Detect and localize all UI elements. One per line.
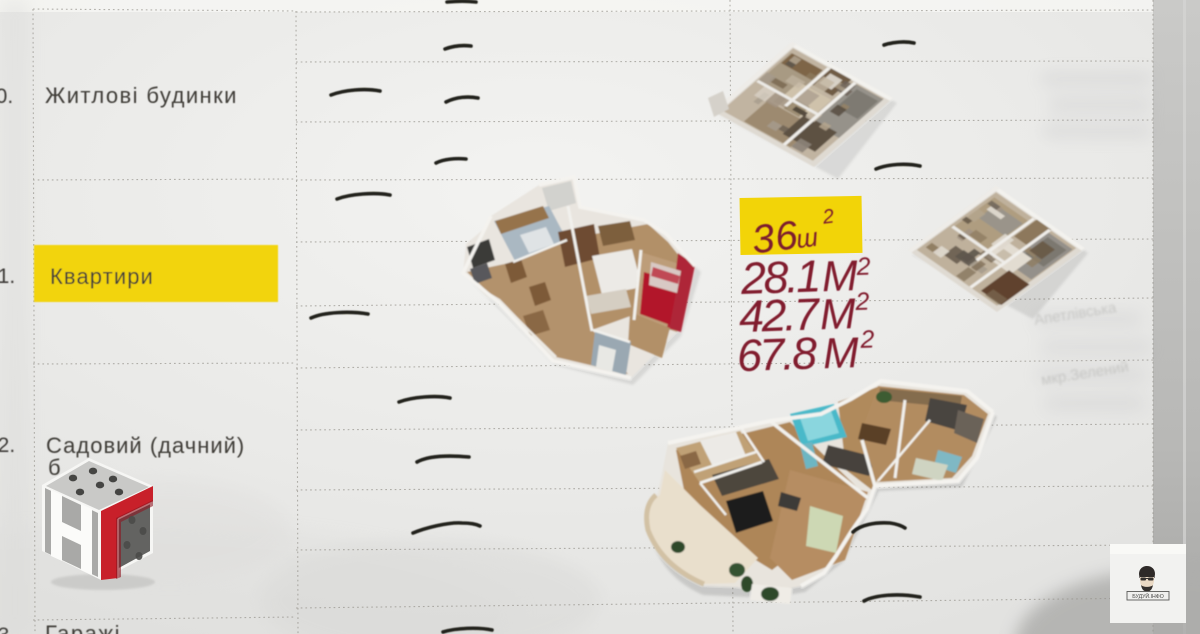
- svg-text:50.: 50.: [0, 85, 13, 108]
- svg-text:Квартири: Квартири: [50, 264, 154, 289]
- svg-text:52.: 52.: [0, 434, 15, 457]
- svg-text:2: 2: [859, 325, 875, 354]
- svg-text:51.: 51.: [0, 265, 15, 288]
- svg-text:ш: ш: [795, 222, 820, 254]
- svg-text:Житлові будинки: Житлові будинки: [45, 83, 238, 108]
- svg-text:М: М: [822, 329, 860, 378]
- svg-text:2: 2: [854, 288, 870, 317]
- svg-text:2: 2: [855, 253, 871, 282]
- svg-text:53.: 53.: [0, 624, 15, 634]
- svg-text:Гаражі: Гаражі: [45, 621, 121, 634]
- svg-text:БУДУЙ.ІНФО: БУДУЙ.ІНФО: [1132, 592, 1164, 600]
- svg-text:Садовий (дачний): Садовий (дачний): [46, 433, 245, 458]
- svg-text:67.8: 67.8: [736, 327, 818, 381]
